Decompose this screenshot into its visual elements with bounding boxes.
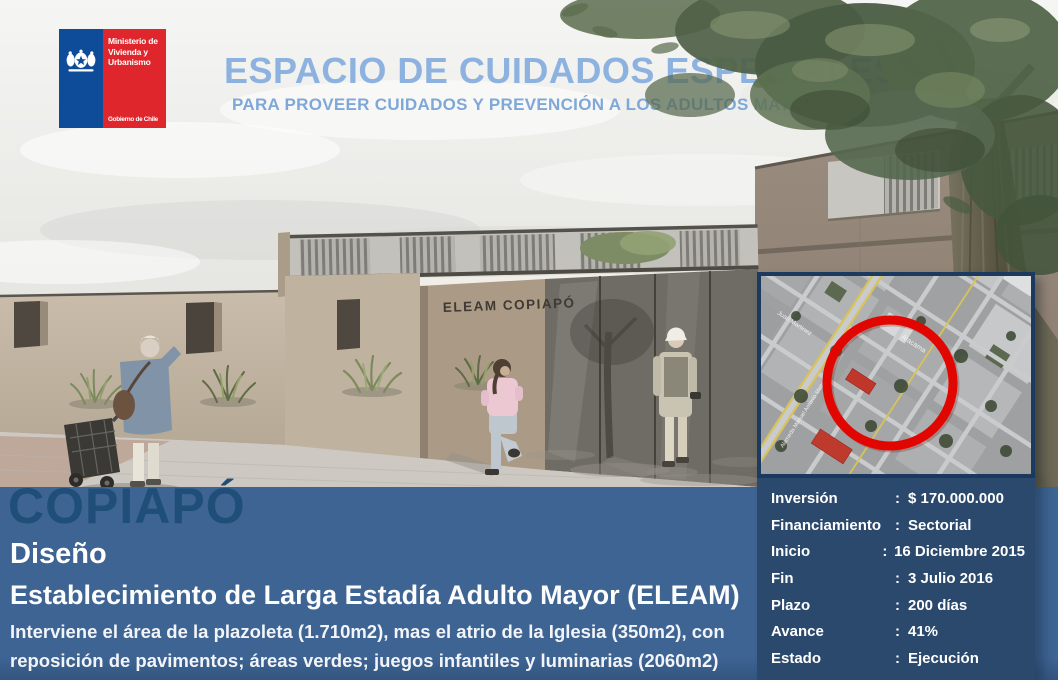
panel-row-fin: Fin : 3 Julio 2016 (757, 571, 1035, 586)
project-description: Interviene el área de la plazoleta (1.71… (10, 618, 758, 675)
panel-row-label: Fin (771, 571, 895, 586)
coat-of-arms-icon (63, 47, 99, 77)
panel-row-value: $ 170.000.000 (908, 491, 1025, 506)
panel-row-colon: : (895, 571, 908, 586)
panel-row-colon: : (895, 518, 908, 533)
panel-row-colon: : (895, 491, 908, 506)
city-name: COPIAPÓ (8, 477, 246, 535)
panel-row-avance: Avance : 41% (757, 624, 1035, 639)
panel-row-value: 41% (908, 624, 1025, 639)
panel-row-colon: : (882, 544, 894, 559)
ministry-logo: Ministerio de Vivienda y Urbanismo Gobie… (59, 29, 166, 128)
panel-row-label: Estado (771, 651, 895, 666)
panel-row-label: Avance (771, 624, 895, 639)
location-map: Juan Martinez Atacama Alameda Manuel Ant… (757, 272, 1035, 478)
panel-row-value: 3 Julio 2016 (908, 571, 1025, 586)
panel-row-plazo: Plazo : 200 días (757, 598, 1035, 613)
panel-row-label: Inversión (771, 491, 895, 506)
panel-row-label: Inicio (771, 544, 882, 559)
project-data-panel: Inversión : $ 170.000.000 Financiamiento… (757, 478, 1035, 680)
panel-row-colon: : (895, 624, 908, 639)
logo-government-text: Gobierno de Chile (108, 116, 162, 123)
panel-row-value: 16 Diciembre 2015 (894, 544, 1025, 559)
logo-blue-field (59, 29, 103, 128)
panel-row-value: Sectorial (908, 518, 1025, 533)
project-stage: Diseño (10, 538, 107, 571)
panel-row-estado: Estado : Ejecución (757, 651, 1035, 666)
logo-ministry-text: Ministerio de Vivienda y Urbanismo (108, 36, 162, 68)
panel-row-colon: : (895, 598, 908, 613)
panel-row-value: Ejecución (908, 651, 1025, 666)
panel-row-value: 200 días (908, 598, 1025, 613)
panel-row-colon: : (895, 651, 908, 666)
presentation-slide: ELEAM COPIAPÓ (0, 0, 1058, 680)
panel-row-financiamiento: Financiamiento : Sectorial (757, 518, 1035, 533)
slide-subtitle: PARA PROVEER CUIDADOS Y PREVENCIÓN A LOS… (232, 95, 840, 115)
panel-row-inversion: Inversión : $ 170.000.000 (757, 491, 1035, 506)
panel-row-label: Financiamiento (771, 518, 895, 533)
logo-red-field: Ministerio de Vivienda y Urbanismo Gobie… (103, 29, 166, 128)
panel-row-label: Plazo (771, 598, 895, 613)
project-name: Establecimiento de Larga Estadía Adulto … (10, 580, 740, 611)
panel-row-inicio: Inicio : 16 Diciembre 2015 (757, 544, 1035, 559)
slide-title: ESPACIO DE CUIDADOS ESPECIALES (224, 50, 898, 92)
